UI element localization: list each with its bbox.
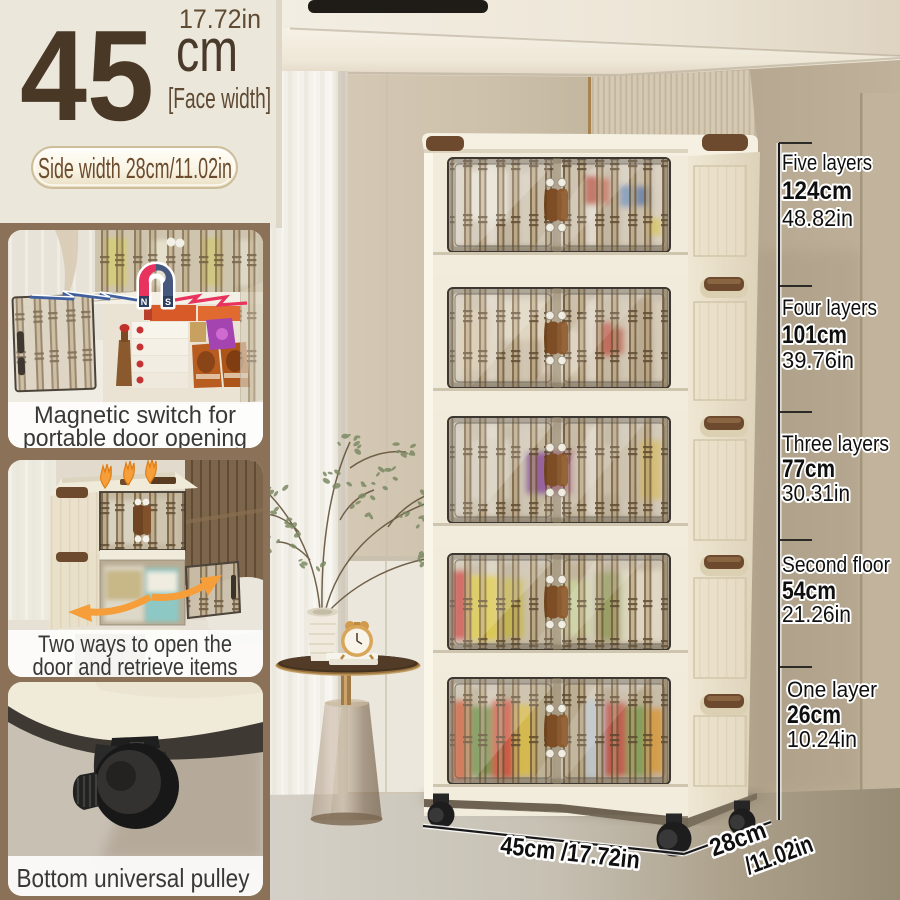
svg-text:30.31in: 30.31in <box>782 480 850 506</box>
svg-text:Side width 28cm/11.02in: Side width 28cm/11.02in <box>38 153 232 185</box>
svg-text:39.76in: 39.76in <box>782 347 854 373</box>
svg-text:Four layers: Four layers <box>782 295 877 320</box>
svg-text:124cm: 124cm <box>782 177 852 205</box>
svg-text:N: N <box>141 297 148 307</box>
svg-text:[Face width]: [Face width] <box>168 83 271 115</box>
svg-text:Five layers: Five layers <box>782 150 872 175</box>
svg-text:48.82in: 48.82in <box>782 205 853 231</box>
svg-text:101cm: 101cm <box>782 321 847 349</box>
svg-text:door and retrieve items: door and retrieve items <box>33 654 238 681</box>
svg-text:cm: cm <box>176 17 238 84</box>
svg-text:Bottom universal pulley: Bottom universal pulley <box>17 863 250 893</box>
svg-text:One layer: One layer <box>787 677 877 702</box>
svg-text:Second floor: Second floor <box>782 552 890 577</box>
svg-text:10.24in: 10.24in <box>787 726 857 752</box>
svg-text:Three layers: Three layers <box>782 431 889 456</box>
svg-text:portable door opening: portable door opening <box>23 425 247 452</box>
svg-text:21.26in: 21.26in <box>782 601 851 627</box>
svg-text:77cm: 77cm <box>782 455 835 483</box>
svg-text:26cm: 26cm <box>787 701 841 729</box>
svg-text:S: S <box>165 297 171 307</box>
svg-text:45: 45 <box>20 4 154 148</box>
